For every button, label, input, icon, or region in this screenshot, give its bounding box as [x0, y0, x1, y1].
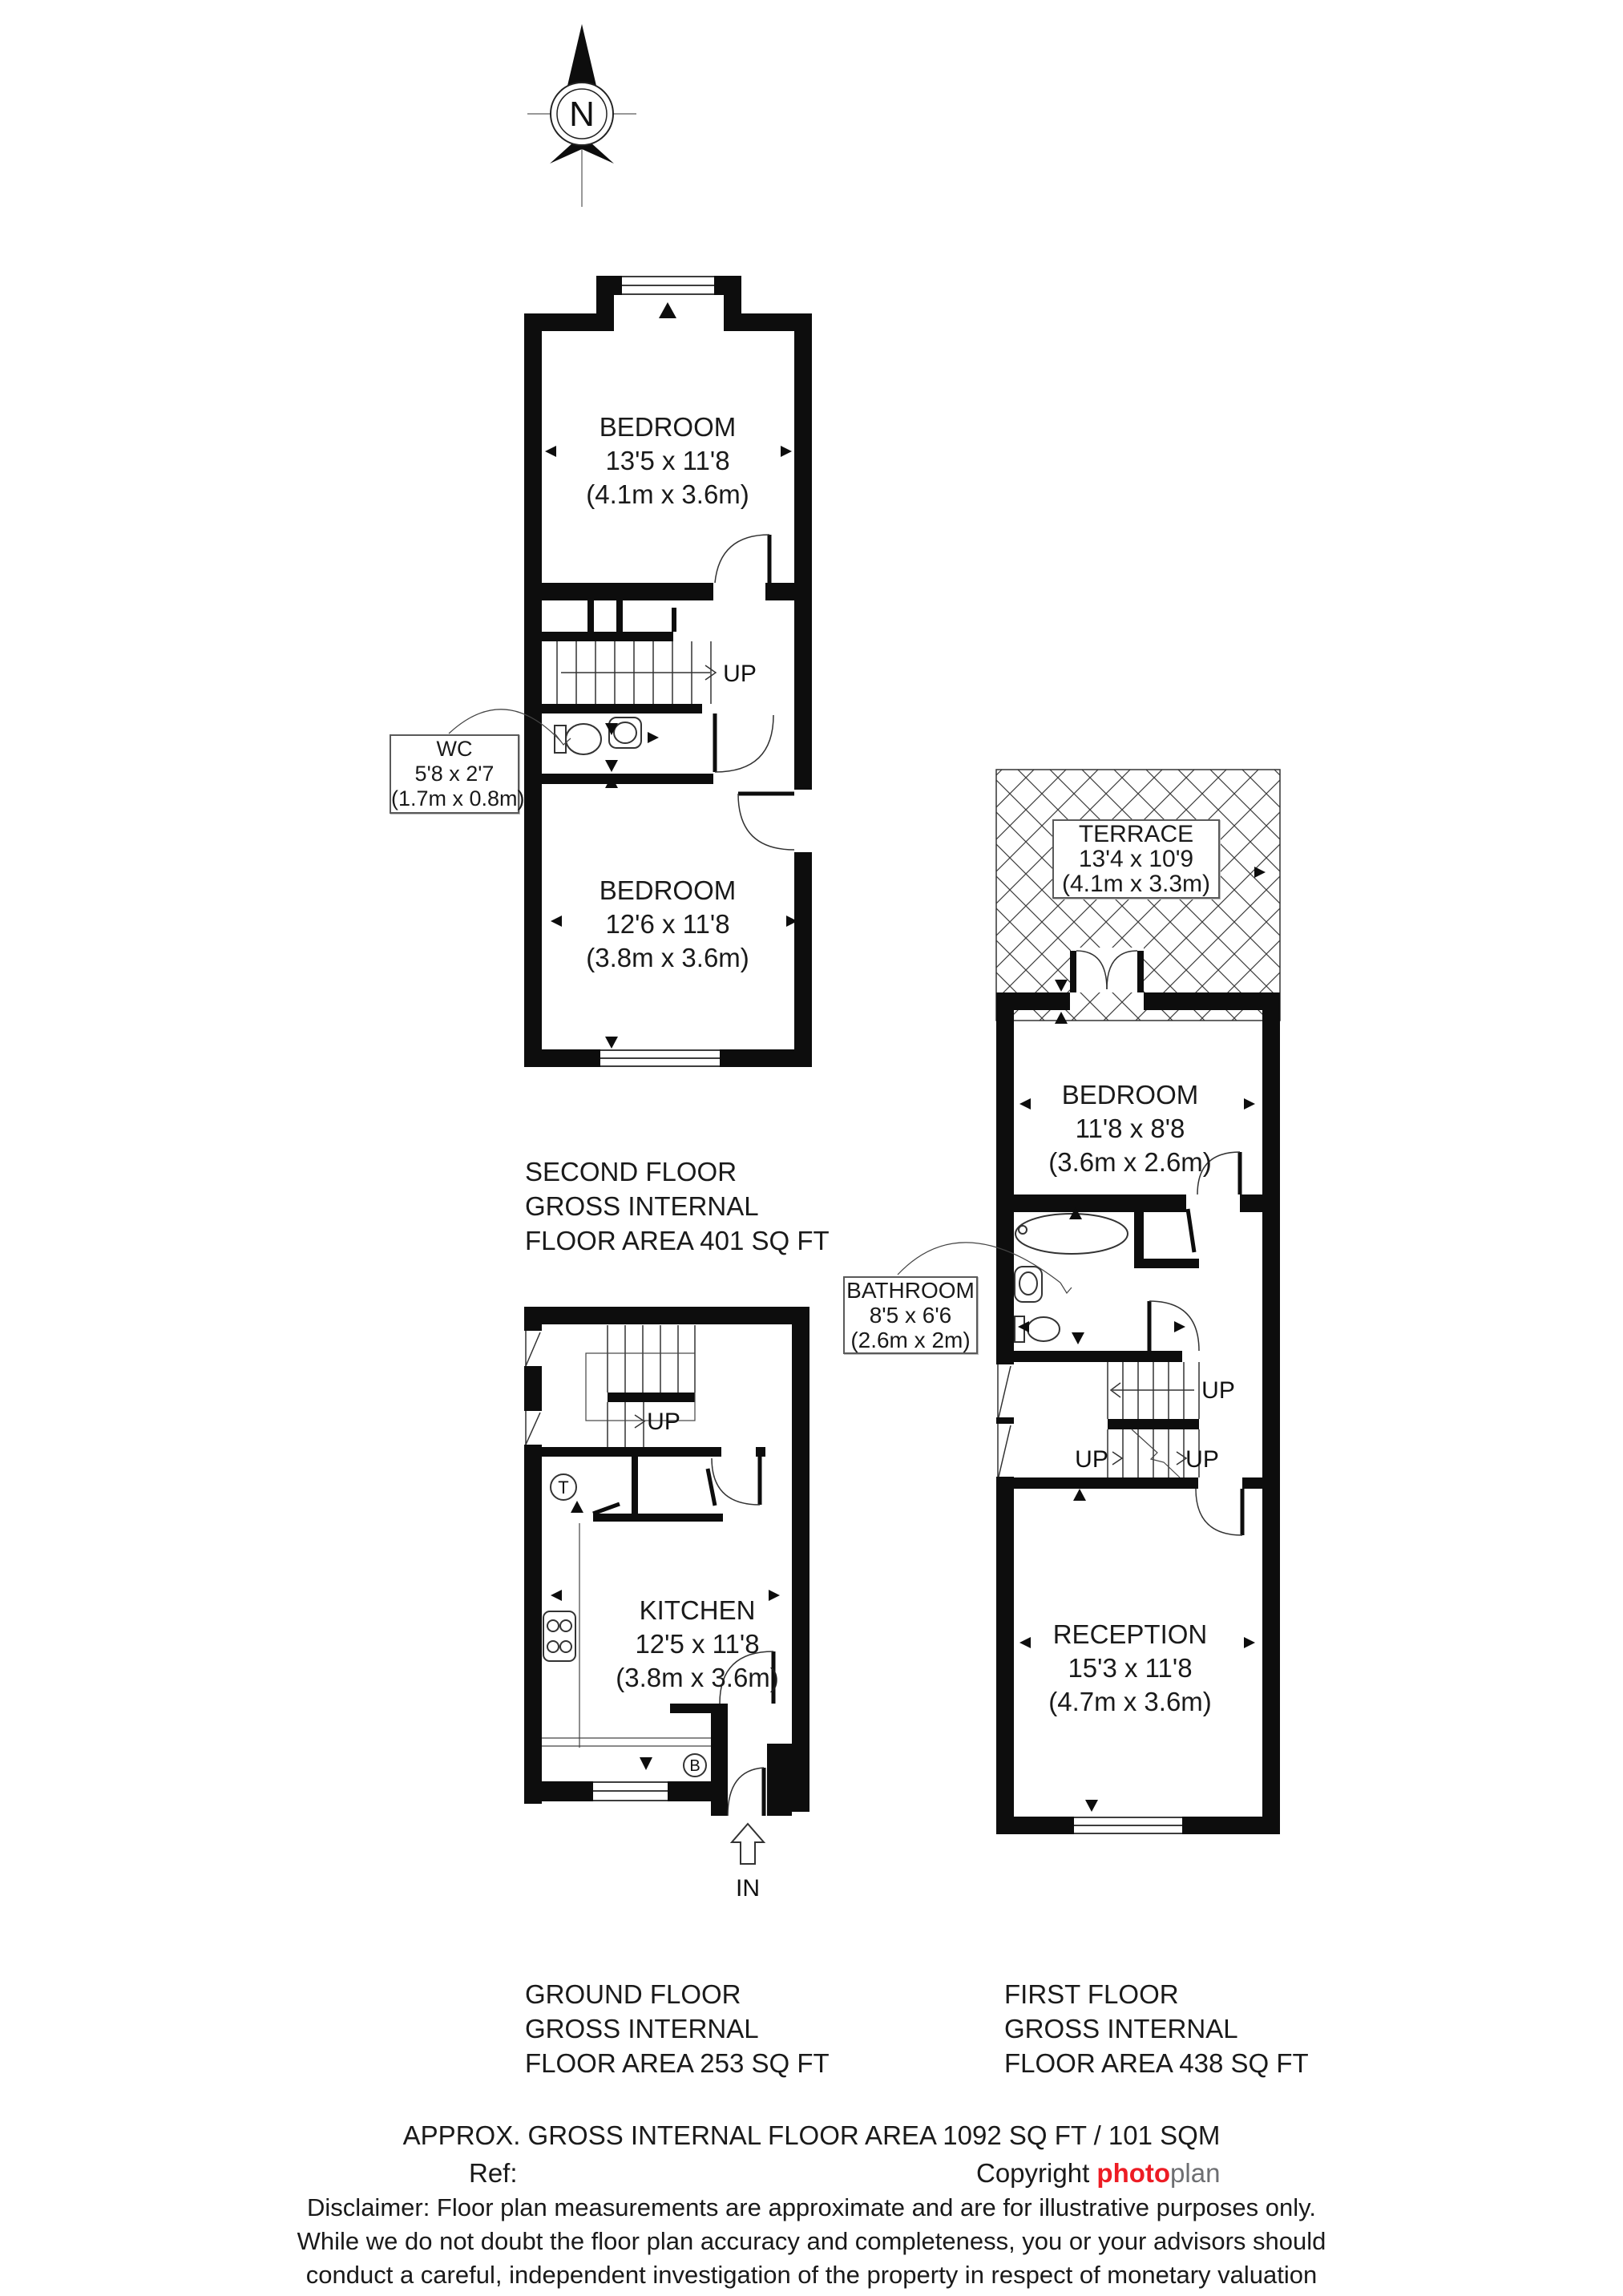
room-size-imperial: 11'8 x 8'8 [1048, 1112, 1212, 1146]
room-size-imperial: 12'5 x 11'8 [616, 1627, 779, 1661]
floorplan-page: N [0, 0, 1623, 2296]
room-label-bedroom-back: BEDROOM 12'6 x 11'8 (3.8m x 3.6m) [586, 874, 749, 975]
sink-icon [1015, 1267, 1042, 1302]
boiler-symbol: B [689, 1757, 700, 1775]
room-size-metric: (4.1m x 3.6m) [586, 478, 749, 511]
room-size-metric: (1.7m x 0.8m) [391, 786, 518, 811]
disclaimer-line-2: While we do not doubt the floor plan acc… [0, 2227, 1623, 2256]
disclaimer-line-3: conduct a careful, independent investiga… [0, 2261, 1623, 2290]
room-name: KITCHEN [616, 1594, 779, 1627]
compass-n-label: N [569, 95, 595, 134]
front-window [1074, 1817, 1182, 1833]
north-compass-icon: N [481, 8, 689, 216]
room-label-wc: WC 5'8 x 2'7 (1.7m x 0.8m) [390, 734, 519, 814]
floor-title-line: FIRST FLOOR [1004, 1977, 1309, 2011]
toilet-icon [555, 724, 601, 754]
up-label: UP [647, 1409, 680, 1435]
ground-floor-title: GROUND FLOOR GROSS INTERNAL FLOOR AREA 2… [525, 1977, 830, 2080]
total-floor-area: APPROX. GROSS INTERNAL FLOOR AREA 1092 S… [0, 2120, 1623, 2151]
sink-icon [609, 717, 641, 748]
floor-title-line: GROSS INTERNAL [1004, 2011, 1309, 2046]
room-label-bathroom: BATHROOM 8'5 x 6'6 (2.6m x 2m) [843, 1276, 978, 1354]
floor-title-line: SECOND FLOOR [525, 1154, 830, 1189]
hob-icon [543, 1611, 575, 1661]
brand-photo: photo [1096, 2158, 1170, 2188]
room-label-bedroom-front: BEDROOM 13'5 x 11'8 (4.1m x 3.6m) [586, 410, 749, 511]
floor-area-line: FLOOR AREA 253 SQ FT [525, 2046, 830, 2080]
room-name: WC [391, 737, 518, 762]
copyright-label: Copyright [976, 2158, 1089, 2188]
room-label-kitchen: KITCHEN 12'5 x 11'8 (3.8m x 3.6m) [616, 1594, 779, 1695]
first-floor-title: FIRST FLOOR GROSS INTERNAL FLOOR AREA 43… [1004, 1977, 1309, 2080]
room-name: BEDROOM [1048, 1078, 1212, 1112]
room-size-metric: (3.6m x 2.6m) [1048, 1146, 1212, 1179]
bay-window [622, 277, 714, 294]
second-floor-title: SECOND FLOOR GROSS INTERNAL FLOOR AREA 4… [525, 1154, 830, 1258]
up-label: UP [1201, 1377, 1235, 1404]
rear-window [600, 1050, 720, 1066]
copyright-line: Copyright photoplan [976, 2158, 1220, 2189]
room-size-imperial: 13'5 x 11'8 [586, 444, 749, 478]
room-name: RECEPTION [1048, 1618, 1212, 1651]
front-window [593, 1782, 668, 1801]
room-size-metric: (2.6m x 2m) [845, 1328, 976, 1352]
up-label: UP [723, 661, 757, 687]
tank-symbol: T [558, 1477, 568, 1498]
room-size-metric: (4.7m x 3.6m) [1048, 1685, 1212, 1719]
brand-plan: plan [1170, 2158, 1220, 2188]
room-name: BATHROOM [845, 1278, 976, 1303]
in-label: IN [736, 1875, 760, 1902]
floor-area-line: FLOOR AREA 401 SQ FT [525, 1223, 830, 1258]
room-name: TERRACE [1054, 822, 1218, 847]
room-label-bedroom-first: BEDROOM 11'8 x 8'8 (3.6m x 2.6m) [1048, 1078, 1212, 1179]
room-size-imperial: 13'4 x 10'9 [1054, 847, 1218, 871]
up-label: UP [1185, 1446, 1219, 1473]
floor-title-line: GROSS INTERNAL [525, 1189, 830, 1223]
stairs-up [557, 641, 716, 704]
room-size-imperial: 8'5 x 6'6 [845, 1303, 976, 1328]
room-size-metric: (4.1m x 3.3m) [1054, 871, 1218, 896]
room-label-terrace: TERRACE 13'4 x 10'9 (4.1m x 3.3m) [1052, 819, 1220, 899]
floor-title-line: GROUND FLOOR [525, 1977, 830, 2011]
toilet-icon [1015, 1316, 1060, 1342]
up-label: UP [1075, 1446, 1108, 1473]
room-size-metric: (3.8m x 3.6m) [616, 1661, 779, 1695]
entrance-in-arrow-icon [732, 1824, 764, 1864]
room-size-metric: (3.8m x 3.6m) [586, 941, 749, 975]
room-size-imperial: 12'6 x 11'8 [586, 907, 749, 941]
room-size-imperial: 15'3 x 11'8 [1048, 1651, 1212, 1685]
ref-label: Ref: [469, 2158, 518, 2189]
floor-title-line: GROSS INTERNAL [525, 2011, 830, 2046]
room-name: BEDROOM [586, 410, 749, 444]
disclaimer-line-1: Disclaimer: Floor plan measurements are … [0, 2193, 1623, 2222]
room-name: BEDROOM [586, 874, 749, 907]
bathtub-icon [1015, 1214, 1128, 1254]
room-size-imperial: 5'8 x 2'7 [391, 762, 518, 786]
floor-area-line: FLOOR AREA 438 SQ FT [1004, 2046, 1309, 2080]
room-label-reception: RECEPTION 15'3 x 11'8 (4.7m x 3.6m) [1048, 1618, 1212, 1719]
